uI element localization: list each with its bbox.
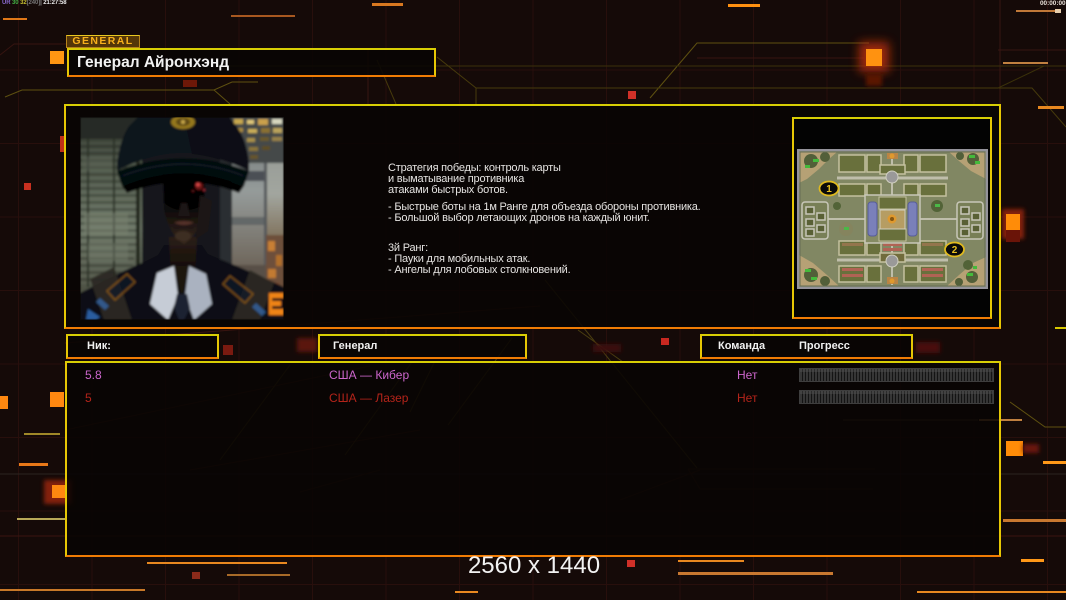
- svg-text:1: 1: [826, 184, 832, 195]
- svg-text:2: 2: [952, 245, 958, 256]
